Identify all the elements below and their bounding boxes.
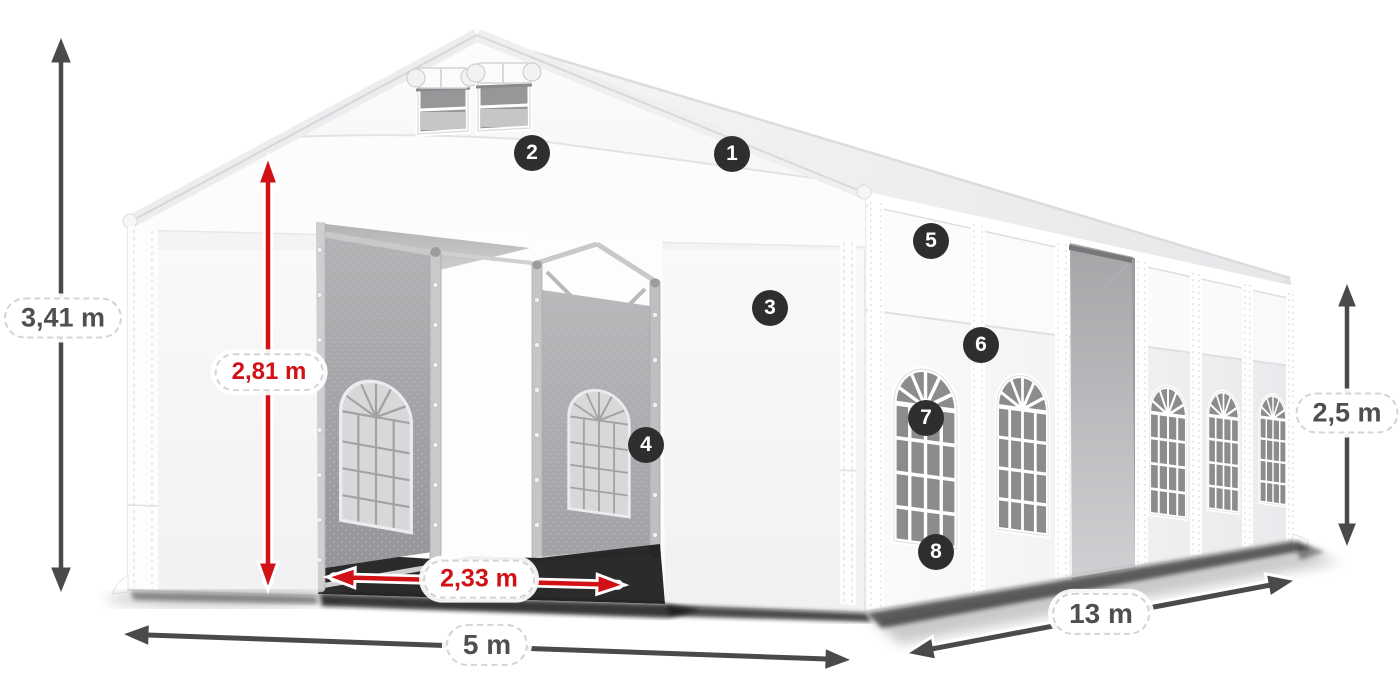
ground-flap-front xyxy=(112,575,128,594)
side-opening xyxy=(1068,243,1137,580)
dimension-label-entrance-width: 2,33 m xyxy=(423,560,535,599)
entrance xyxy=(314,216,665,604)
dimension-label-entrance-height: 2,81 m xyxy=(215,353,324,391)
callout-badge-1: 1 xyxy=(714,136,750,172)
front-right-strap xyxy=(840,238,856,606)
side-window-5 xyxy=(1259,393,1287,505)
side-window-4 xyxy=(1207,389,1240,513)
callout-badge-5: 5 xyxy=(913,223,949,259)
side-window-2 xyxy=(996,372,1050,536)
callout-badge-6: 6 xyxy=(963,327,999,363)
left-door-window-print xyxy=(339,375,413,533)
dimension-label-front-width: 5 m xyxy=(446,624,528,666)
callout-badge-8: 8 xyxy=(918,534,954,570)
front-left-strap xyxy=(128,226,158,590)
callout-badge-3: 3 xyxy=(752,290,788,326)
dimension-label-total-height: 3,41 m xyxy=(4,297,122,338)
dimension-label-wall-height: 2,5 m xyxy=(1295,392,1398,433)
callout-badge-7: 7 xyxy=(908,400,944,436)
callout-badge-2: 2 xyxy=(514,135,550,171)
tent-dimension-diagram: 3,41 m 2,81 m 2,33 m 5 m 13 m 2,5 m 1 2 … xyxy=(0,0,1400,700)
side-window-1 xyxy=(893,365,959,549)
side-window-3 xyxy=(1149,384,1188,518)
callout-badge-4: 4 xyxy=(628,427,664,463)
dimension-label-side-length: 13 m xyxy=(1052,593,1150,635)
middle-door-window-print xyxy=(567,386,630,518)
tent-illustration xyxy=(0,0,1400,700)
entrance-left-door xyxy=(314,216,441,592)
